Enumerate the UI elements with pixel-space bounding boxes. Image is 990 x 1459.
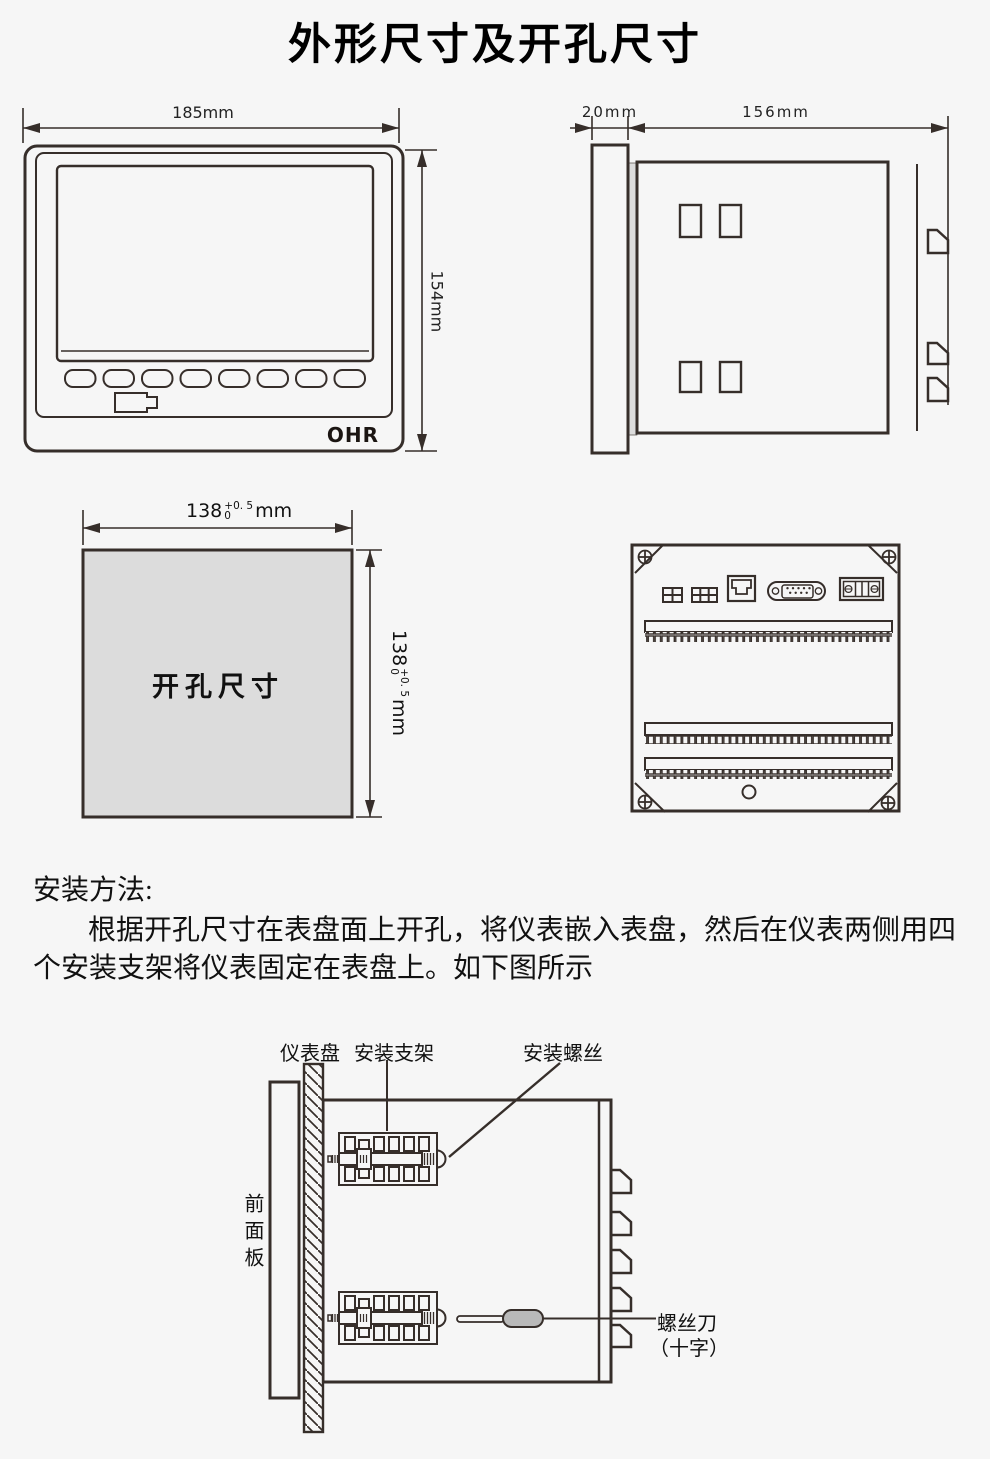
bracket-label: 安装支架 bbox=[344, 1037, 444, 1066]
side-front-bezel bbox=[592, 145, 628, 453]
page: 外形尺寸及开孔尺寸 bbox=[0, 0, 990, 1459]
side-latch-hook bbox=[928, 378, 948, 401]
cutout-height-value: 138 bbox=[388, 630, 410, 666]
cutout-height-dimension bbox=[356, 550, 382, 817]
cutout-width-label: 138+0. 50mm bbox=[186, 500, 292, 522]
rear-terminal-strip bbox=[645, 758, 892, 779]
install-front-panel bbox=[270, 1082, 299, 1398]
side-device-body bbox=[637, 162, 948, 433]
rear-connector-3pin bbox=[692, 588, 717, 602]
rear-connector-2pin bbox=[663, 588, 682, 602]
install-method-heading: 安装方法: bbox=[33, 874, 153, 908]
rear-ethernet-port bbox=[728, 576, 755, 601]
panel-label: 仪表盘 bbox=[270, 1037, 350, 1066]
front-screen bbox=[57, 166, 373, 361]
screw-label: 安装螺丝 bbox=[513, 1037, 613, 1066]
mounting-bracket bbox=[328, 1133, 446, 1185]
front-panel-label: 前面板 bbox=[238, 1193, 267, 1274]
front-device-body bbox=[25, 146, 403, 451]
screwdriver bbox=[457, 1310, 656, 1327]
install-latch-hook bbox=[611, 1170, 631, 1193]
install-method-line1: 根据开孔尺寸在表盘面上开孔，将仪表嵌入表盘，然后在仪表两侧用四 bbox=[88, 914, 956, 948]
rear-hole bbox=[743, 786, 756, 799]
cutout-label: 开孔尺寸 bbox=[118, 665, 318, 704]
rear-db9-port bbox=[768, 582, 825, 600]
install-latch-hook bbox=[611, 1212, 631, 1235]
screwdriver-label2: （十字） bbox=[649, 1332, 729, 1361]
rear-power-terminal bbox=[840, 578, 883, 600]
cutout-height-label: 138+0. 50mm bbox=[388, 630, 410, 736]
side-view-diagram bbox=[560, 100, 990, 460]
side-depth-label: 20mm bbox=[575, 103, 645, 121]
install-latch-hook bbox=[611, 1250, 631, 1273]
installation-diagram bbox=[230, 1030, 760, 1459]
panel-board-hatched bbox=[304, 1064, 323, 1432]
side-latch-hook bbox=[928, 343, 948, 364]
screw-leader-line bbox=[449, 1063, 560, 1157]
front-buttons bbox=[65, 370, 365, 387]
rear-terminal-strip bbox=[645, 723, 892, 744]
install-method-line2: 个安装支架将仪表固定在表盘上。如下图所示 bbox=[33, 952, 593, 986]
front-usb-port bbox=[115, 393, 157, 412]
front-width-label: 185mm bbox=[153, 103, 253, 122]
cutout-width-value: 138 bbox=[186, 500, 222, 522]
rear-terminal-strip bbox=[645, 621, 892, 642]
front-view-diagram bbox=[15, 100, 450, 460]
mounting-bracket bbox=[328, 1292, 446, 1344]
install-latch-hook bbox=[611, 1288, 631, 1311]
brand-logo: OHR bbox=[326, 423, 380, 447]
cutout-height-unit: mm bbox=[388, 699, 410, 736]
front-height-label: 154mm bbox=[428, 271, 447, 331]
cutout-width-unit: mm bbox=[255, 500, 292, 522]
side-latch-hook bbox=[928, 230, 948, 253]
page-title: 外形尺寸及开孔尺寸 bbox=[0, 10, 990, 72]
install-latch-hook bbox=[611, 1325, 631, 1347]
rear-view-diagram bbox=[620, 535, 920, 825]
side-length-label: 156mm bbox=[736, 103, 816, 121]
